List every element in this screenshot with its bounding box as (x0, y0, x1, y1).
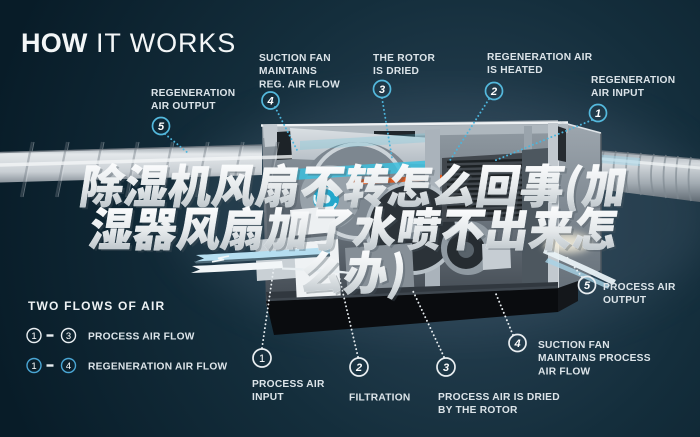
svg-text:3: 3 (443, 362, 449, 374)
svg-text:1: 1 (595, 108, 601, 120)
svg-text:1: 1 (31, 361, 36, 372)
svg-text:PROCESS AIR FLOW: PROCESS AIR FLOW (88, 332, 195, 343)
svg-text:1: 1 (259, 353, 265, 365)
svg-text:REGENERATION AIR FLOW: REGENERATION AIR FLOW (88, 362, 228, 373)
svg-text:TWO FLOWS OF AIR: TWO FLOWS OF AIR (28, 299, 165, 313)
svg-text:2: 2 (490, 86, 497, 98)
svg-text:4: 4 (513, 338, 520, 350)
svg-text:HOW IT WORKS: HOW IT WORKS (21, 28, 236, 58)
svg-text:3: 3 (379, 84, 385, 96)
svg-text:2: 2 (355, 362, 362, 374)
svg-text:1: 1 (31, 331, 36, 342)
svg-text:4: 4 (66, 361, 71, 372)
svg-text:5: 5 (584, 280, 591, 292)
svg-text:FILTRATION: FILTRATION (349, 393, 411, 404)
svg-text:3: 3 (66, 331, 71, 342)
svg-text:4: 4 (266, 95, 273, 107)
svg-text:5: 5 (158, 121, 165, 133)
